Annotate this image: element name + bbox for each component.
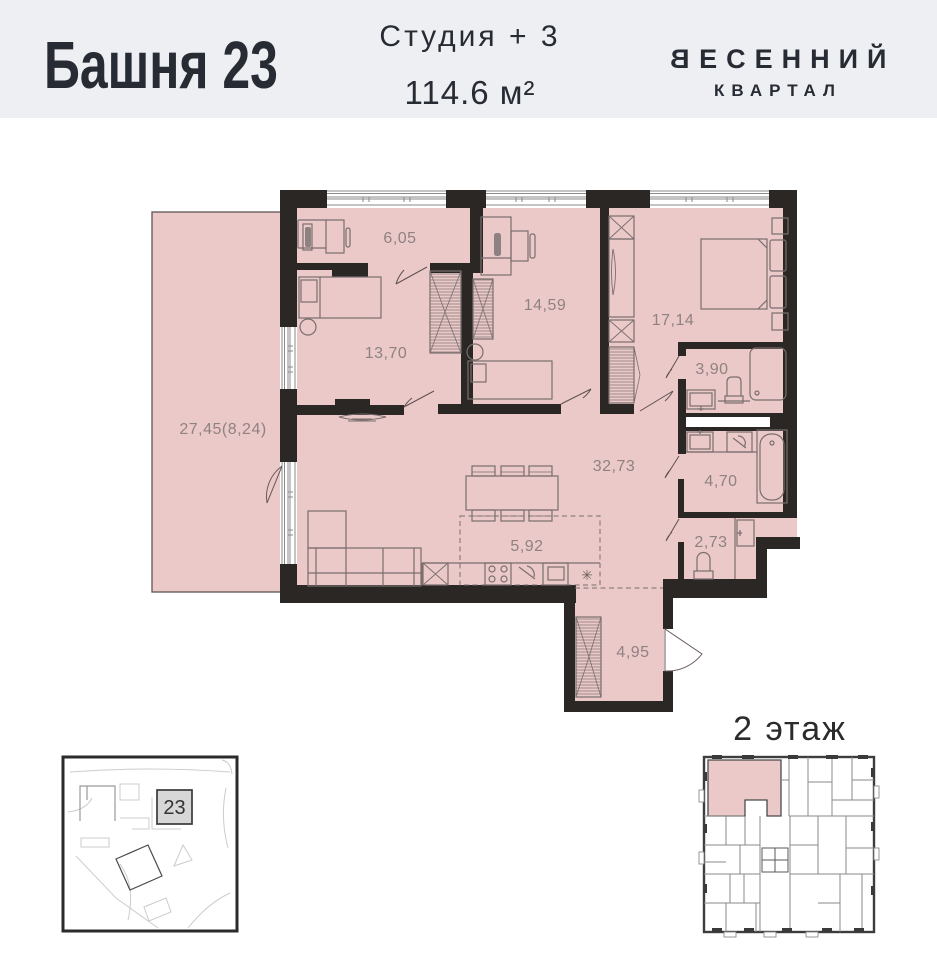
svg-text:2,73: 2,73 bbox=[694, 534, 727, 551]
svg-text:17,14: 17,14 bbox=[652, 312, 695, 329]
svg-text:2 этаж: 2 этаж bbox=[733, 710, 847, 748]
svg-text:3,90: 3,90 bbox=[695, 361, 728, 378]
svg-text:5,92: 5,92 bbox=[510, 538, 543, 555]
svg-text:32,73: 32,73 bbox=[593, 458, 636, 475]
svg-text:23: 23 bbox=[163, 797, 185, 819]
svg-text:13,70: 13,70 bbox=[365, 345, 408, 362]
svg-text:14,59: 14,59 bbox=[524, 297, 567, 314]
svg-text:27,45(8,24): 27,45(8,24) bbox=[179, 421, 266, 438]
svg-text:4,70: 4,70 bbox=[704, 473, 737, 490]
svg-text:6,05: 6,05 bbox=[383, 230, 416, 247]
svg-text:✳: ✳ bbox=[581, 567, 593, 583]
svg-text:4,95: 4,95 bbox=[616, 644, 649, 661]
